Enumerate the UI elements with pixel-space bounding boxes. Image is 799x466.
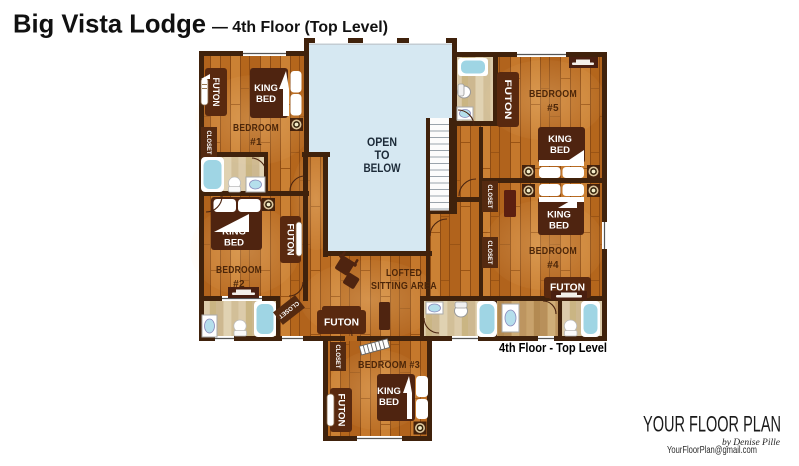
svg-text:BED: BED xyxy=(379,397,399,408)
svg-text:FUTON: FUTON xyxy=(324,318,359,329)
svg-text:SITTING AREA: SITTING AREA xyxy=(371,281,437,292)
svg-text:OPEN: OPEN xyxy=(367,137,397,149)
svg-text:BED: BED xyxy=(256,94,276,105)
svg-text:BEDROOM: BEDROOM xyxy=(529,89,577,100)
svg-text:YourFloorPlan@gmail.com: YourFloorPlan@gmail.com xyxy=(667,444,757,456)
svg-text:BEDROOM #3: BEDROOM #3 xyxy=(358,360,420,371)
svg-text:KING: KING xyxy=(222,227,246,238)
svg-text:BED: BED xyxy=(550,145,570,156)
svg-text:BEDROOM: BEDROOM xyxy=(216,265,262,276)
svg-text:FUTON: FUTON xyxy=(286,224,296,256)
svg-text:BED: BED xyxy=(224,238,244,249)
svg-text:LOFTED: LOFTED xyxy=(386,268,422,279)
svg-text:BEDROOM: BEDROOM xyxy=(233,123,279,134)
svg-text:#2: #2 xyxy=(233,279,245,290)
svg-text:CLOSET: CLOSET xyxy=(486,185,492,209)
svg-text:#4: #4 xyxy=(547,260,559,271)
svg-text:FUTON: FUTON xyxy=(550,283,585,294)
svg-text:4th Floor - Top Level: 4th Floor - Top Level xyxy=(499,340,607,355)
svg-text:CLOSET: CLOSET xyxy=(486,241,492,265)
svg-text:KING: KING xyxy=(547,210,571,221)
svg-text:TO: TO xyxy=(375,150,390,162)
svg-text:CLOSET: CLOSET xyxy=(334,345,340,369)
svg-text:CLOSET: CLOSET xyxy=(205,131,211,155)
svg-text:Big Vista Lodge: Big Vista Lodge xyxy=(13,9,206,39)
svg-text:#5: #5 xyxy=(547,103,559,114)
svg-text:BEDROOM: BEDROOM xyxy=(529,246,577,257)
svg-text:#1: #1 xyxy=(250,137,262,148)
svg-text:FUTON: FUTON xyxy=(503,80,513,120)
svg-text:YOUR FLOOR PLAN: YOUR FLOOR PLAN xyxy=(643,413,781,438)
svg-text:— 4th Floor (Top Level): — 4th Floor (Top Level) xyxy=(212,19,388,36)
svg-text:KING: KING xyxy=(254,83,278,94)
svg-text:FUTON: FUTON xyxy=(337,394,347,427)
svg-text:BELOW: BELOW xyxy=(364,163,401,175)
svg-text:BED: BED xyxy=(549,221,569,232)
svg-text:KING: KING xyxy=(377,386,401,397)
svg-text:FUTON: FUTON xyxy=(211,78,221,107)
svg-text:KING: KING xyxy=(548,134,572,145)
